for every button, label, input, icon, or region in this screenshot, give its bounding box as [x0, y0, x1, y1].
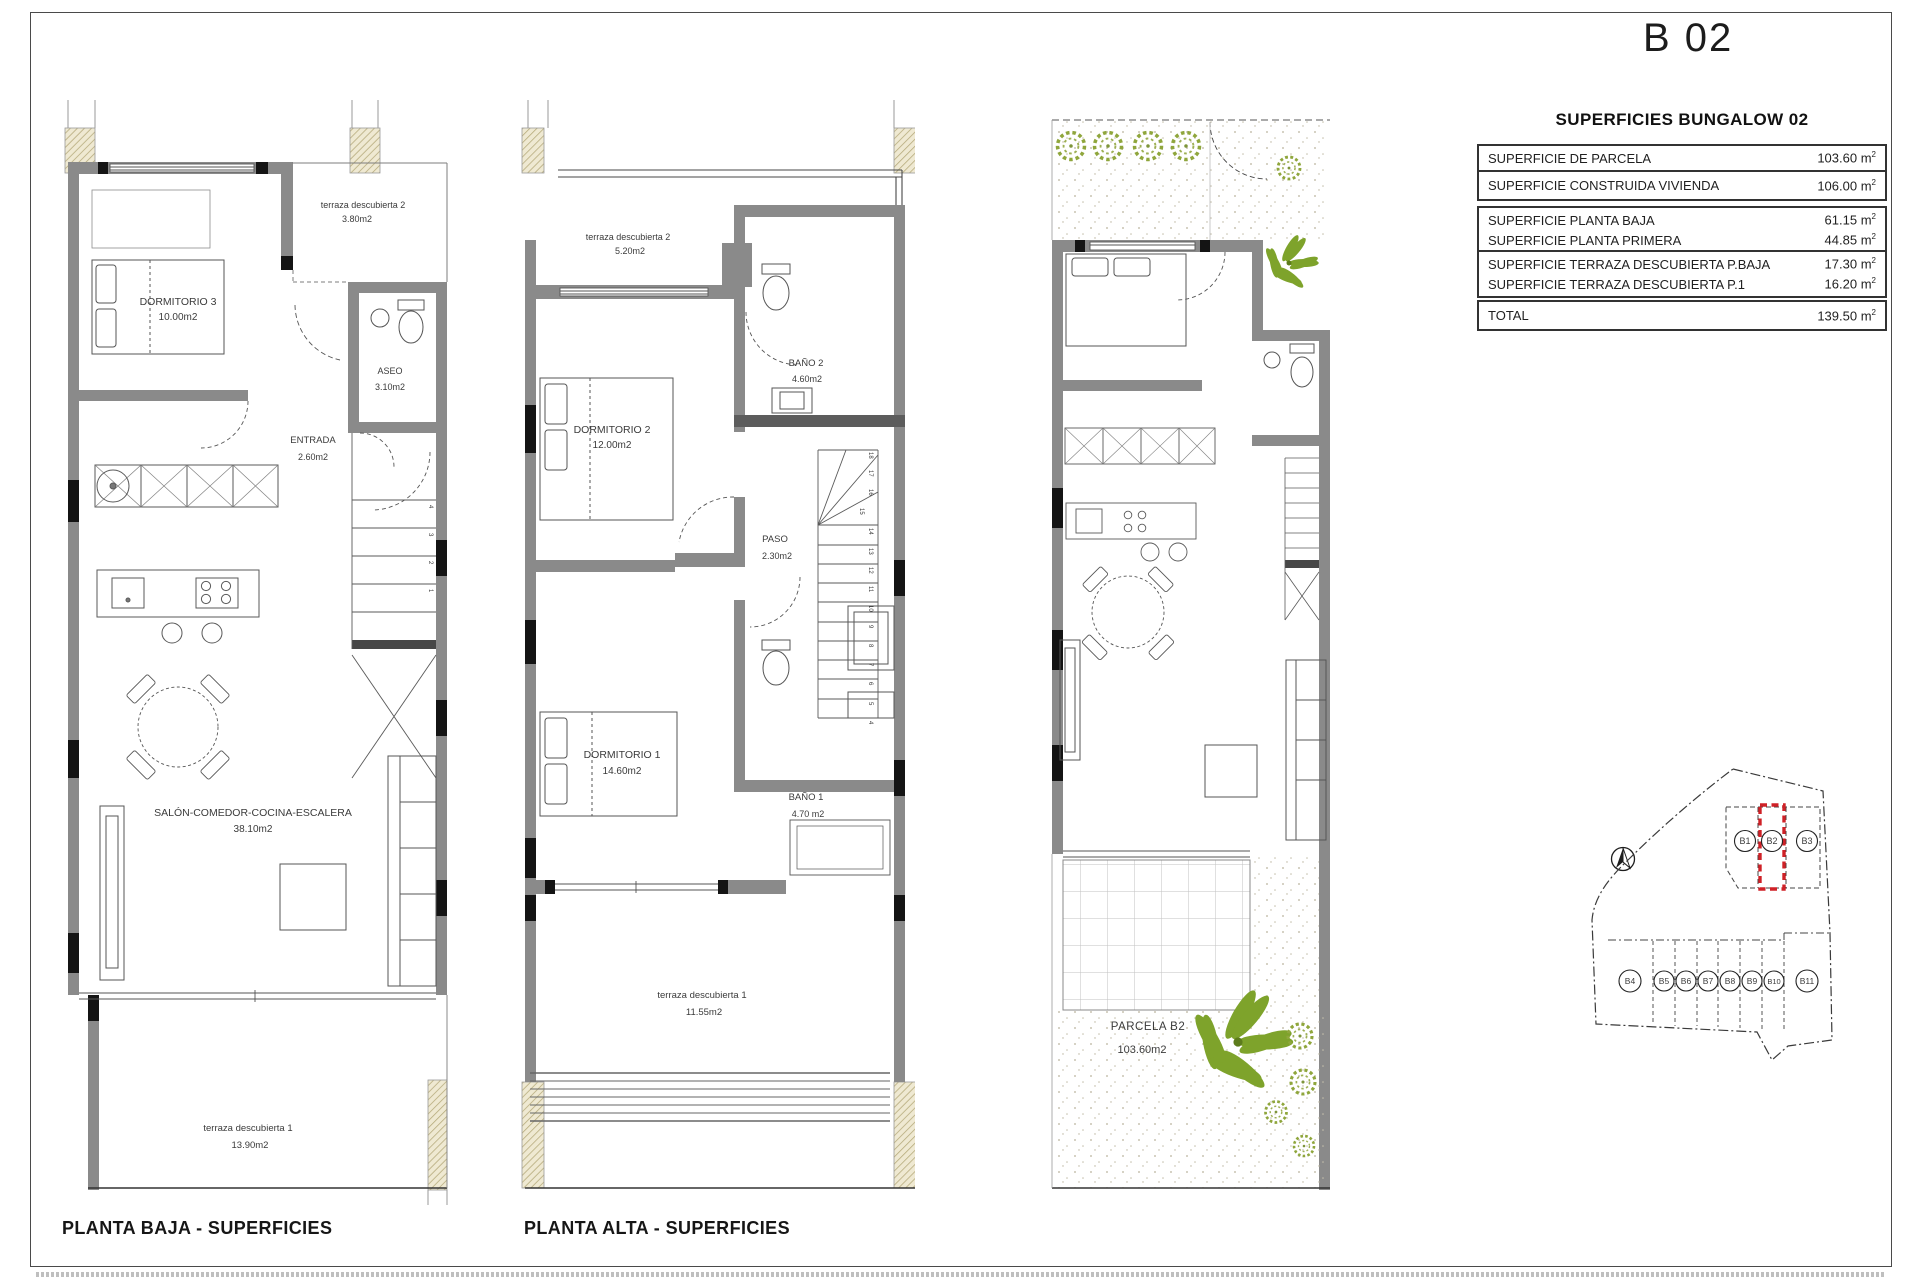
svg-text:15: 15	[858, 508, 864, 515]
room-label: terraza descubierta 1	[657, 990, 746, 1001]
caption-planta-baja: PLANTA BAJA - SUPERFICIES	[62, 1218, 332, 1239]
palm-icon	[1263, 233, 1319, 290]
bed-dormitorio3	[92, 190, 224, 354]
room-label: terraza descubierta 1	[203, 1123, 292, 1134]
room-label: BAÑO 2	[789, 358, 824, 369]
entry-door-swing	[295, 305, 340, 360]
room-label: DORMITORIO 2	[574, 424, 651, 436]
bath-fixtures	[1264, 344, 1314, 387]
plan-planta-baja: 4 3 2 1 DORMITORIO 3	[55, 95, 460, 1205]
room-label: terraza descubierta 2	[586, 232, 671, 242]
svg-text:8: 8	[867, 644, 873, 648]
svg-text:B1: B1	[1739, 836, 1750, 846]
table-row: SUPERFICIE PLANTA BAJA 61.15 m2	[1479, 210, 1885, 230]
room-label: SALÓN-COMEDOR-COCINA-ESCALERA	[154, 806, 352, 819]
dormitorio1-door-swing	[750, 577, 800, 627]
bedroom-door-swing	[201, 401, 248, 448]
room-label: BAÑO 1	[789, 792, 824, 803]
svg-text:1: 1	[427, 589, 433, 593]
garden-top	[1052, 121, 1330, 240]
table-row: SUPERFICIE CONSTRUIDA VIVIENDA 106.00 m2	[1479, 170, 1885, 199]
plan-planta-alta: 18 17 16 15 14 13 12 11 10 9 8 7 6 5 4	[515, 95, 915, 1205]
stairs	[1285, 458, 1319, 620]
room-area: 14.60m2	[603, 766, 642, 777]
svg-text:B8: B8	[1725, 976, 1736, 986]
parcela-label: PARCELA B2	[1111, 1021, 1185, 1033]
room-area: 5.20m2	[615, 246, 645, 256]
room-area: 4.70 m2	[792, 809, 825, 819]
room-area: 11.55m2	[686, 1007, 722, 1018]
kitchen	[1065, 428, 1215, 561]
svg-text:5: 5	[867, 702, 873, 706]
sideboard	[100, 806, 124, 980]
walls	[68, 162, 447, 1190]
room-area: 2.60m2	[298, 452, 328, 462]
room-area: 10.00m2	[159, 312, 198, 323]
windows	[1063, 242, 1250, 857]
windows	[555, 288, 718, 893]
entry-door-swing	[1177, 252, 1225, 300]
room-label: PASO	[762, 534, 788, 545]
table-row: SUPERFICIE TERRAZA DESCUBIERTA P.1 16.20…	[1479, 274, 1885, 294]
table-group-parcela: SUPERFICIE DE PARCELA 103.60 m2 SUPERFIC…	[1477, 144, 1887, 201]
coffee-table	[1205, 745, 1257, 797]
table-row: SUPERFICIE TERRAZA DESCUBIERTA P.BAJA 17…	[1479, 254, 1885, 274]
svg-text:B6: B6	[1681, 976, 1692, 986]
plan-parcela: PARCELA B2 103.60m2	[1040, 95, 1345, 1205]
kitchen-island	[97, 570, 259, 643]
room-area: 3.80m2	[342, 214, 372, 224]
sofa	[388, 756, 436, 986]
svg-text:B10: B10	[1767, 977, 1780, 986]
superficies-table-title: SUPERFICIES BUNGALOW 02	[1477, 110, 1887, 130]
svg-text:4: 4	[867, 721, 873, 725]
room-area: 12.00m2	[593, 440, 632, 451]
bano2-fixtures	[746, 264, 812, 413]
room-area: 38.10m2	[234, 824, 273, 835]
svg-text:17: 17	[867, 470, 873, 477]
bano1-fixtures	[762, 606, 894, 875]
room-area: 2.30m2	[762, 551, 792, 561]
stairs	[352, 433, 436, 778]
room-label: ENTRADA	[290, 435, 336, 446]
bed	[1066, 254, 1186, 346]
legal-microtext	[36, 1272, 1886, 1277]
coffee-table	[280, 864, 346, 930]
top-unit-badges: B1 B2 B3	[1735, 831, 1818, 852]
svg-text:B3: B3	[1801, 836, 1812, 846]
svg-text:3: 3	[427, 533, 433, 537]
svg-text:B5: B5	[1659, 976, 1670, 986]
svg-text:B9: B9	[1747, 976, 1758, 986]
north-arrow-icon	[1612, 848, 1635, 871]
tiled-terrace	[1063, 860, 1250, 1010]
site-diagram: B1 B2 B3 B4 B5 B6 B7	[1560, 740, 1920, 1080]
bed-dormitorio1	[540, 712, 677, 816]
bottom-unit-badges: B4 B5 B6 B7 B8 B9 B10 B11	[1619, 970, 1818, 992]
room-label: ASEO	[377, 366, 402, 376]
room-label: DORMITORIO 1	[584, 749, 661, 761]
room-area: 13.90m2	[232, 1140, 269, 1151]
parcela-area: 103.60m2	[1118, 1044, 1167, 1056]
dining-table	[1082, 566, 1175, 660]
svg-text:6: 6	[867, 682, 873, 686]
table-row: SUPERFICIE PLANTA PRIMERA 44.85 m2	[1479, 230, 1885, 250]
table-row-total: TOTAL 139.50 m2	[1479, 302, 1885, 329]
svg-text:16: 16	[867, 489, 873, 496]
svg-text:2: 2	[427, 561, 433, 565]
svg-text:13: 13	[867, 548, 873, 555]
svg-text:4: 4	[427, 505, 433, 509]
top-cluster	[1726, 807, 1820, 888]
stair-numbers: 4 3 2 1	[427, 505, 433, 593]
svg-text:11: 11	[867, 586, 873, 593]
kitchen-cabinets	[95, 465, 278, 507]
table-group-terrazas: SUPERFICIE TERRAZA DESCUBIERTA P.BAJA 17…	[1477, 250, 1887, 298]
entrada-door-swing	[372, 452, 430, 510]
caption-planta-alta: PLANTA ALTA - SUPERFICIES	[524, 1218, 790, 1239]
svg-text:12: 12	[867, 567, 873, 574]
dormitorio2-door-swing	[679, 497, 734, 542]
room-label: terraza descubierta 2	[321, 200, 406, 210]
svg-text:B11: B11	[1800, 976, 1815, 986]
sheet-title: B 02	[1643, 16, 1733, 61]
room-area: 3.10m2	[375, 382, 405, 392]
terraza1-pergola	[530, 1073, 890, 1121]
svg-text:B2: B2	[1766, 836, 1777, 846]
room-area: 4.60m2	[792, 374, 822, 384]
svg-text:B4: B4	[1625, 976, 1636, 986]
svg-text:18: 18	[867, 452, 873, 459]
svg-text:14: 14	[867, 528, 873, 535]
parcel-outline	[1592, 769, 1832, 1060]
stair-numbers: 18 17 16 15 14 13 12 11 10 9 8 7 6 5 4	[858, 452, 873, 725]
svg-text:9: 9	[867, 625, 873, 629]
drawing-sheet: 4 3 2 1 DORMITORIO 3	[0, 0, 1920, 1280]
table-row: SUPERFICIE DE PARCELA 103.60 m2	[1479, 146, 1885, 170]
table-group-total: TOTAL 139.50 m2	[1477, 300, 1887, 331]
svg-text:B7: B7	[1703, 976, 1714, 986]
table-group-plantas: SUPERFICIE PLANTA BAJA 61.15 m2 SUPERFIC…	[1477, 206, 1887, 254]
dining-table	[126, 674, 230, 780]
room-label: DORMITORIO 3	[140, 296, 217, 308]
